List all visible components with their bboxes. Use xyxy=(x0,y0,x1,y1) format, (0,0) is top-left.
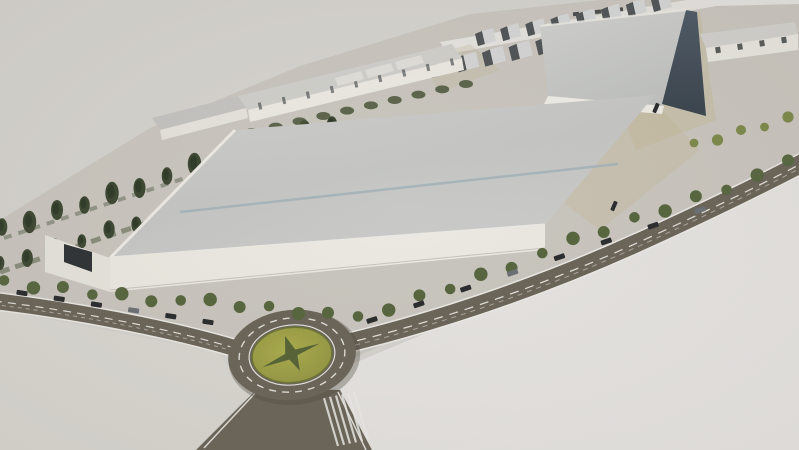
vignette-overlay xyxy=(0,0,799,450)
site-plan-rendering xyxy=(0,0,799,450)
rendering-canvas xyxy=(0,0,799,450)
